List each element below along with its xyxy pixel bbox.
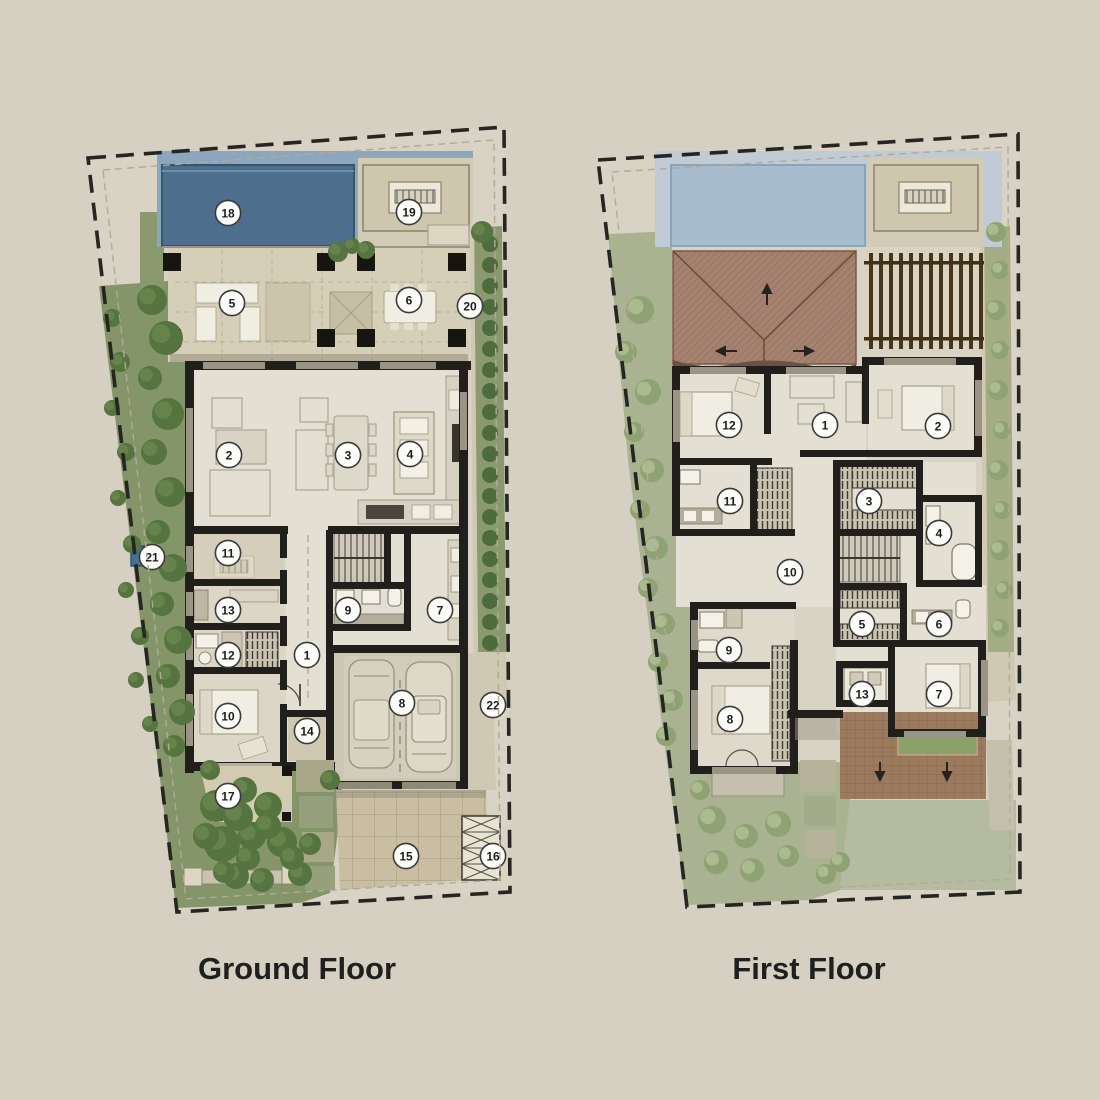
svg-text:13: 13 xyxy=(855,687,869,701)
svg-text:20: 20 xyxy=(463,299,477,313)
svg-text:4: 4 xyxy=(407,447,414,461)
svg-text:10: 10 xyxy=(783,565,797,579)
svg-text:12: 12 xyxy=(221,648,235,662)
svg-text:5: 5 xyxy=(859,617,866,631)
svg-text:2: 2 xyxy=(935,419,942,433)
svg-text:14: 14 xyxy=(300,724,314,738)
svg-text:8: 8 xyxy=(727,712,734,726)
svg-text:4: 4 xyxy=(936,526,943,540)
svg-text:11: 11 xyxy=(724,494,737,508)
svg-text:18: 18 xyxy=(221,206,235,220)
svg-text:6: 6 xyxy=(406,293,413,307)
svg-text:19: 19 xyxy=(402,205,416,219)
svg-text:1: 1 xyxy=(822,418,829,432)
svg-text:2: 2 xyxy=(226,448,233,462)
svg-text:9: 9 xyxy=(345,603,352,617)
svg-text:11: 11 xyxy=(222,546,235,560)
svg-text:First Floor: First Floor xyxy=(732,951,885,986)
svg-text:3: 3 xyxy=(345,448,352,462)
svg-text:6: 6 xyxy=(936,617,943,631)
svg-text:Ground Floor: Ground Floor xyxy=(198,951,396,986)
svg-text:13: 13 xyxy=(221,603,235,617)
svg-text:16: 16 xyxy=(486,849,500,863)
svg-text:3: 3 xyxy=(866,494,873,508)
svg-text:1: 1 xyxy=(304,648,311,662)
svg-text:7: 7 xyxy=(936,687,943,701)
svg-text:17: 17 xyxy=(221,789,235,803)
svg-text:7: 7 xyxy=(437,603,444,617)
svg-text:5: 5 xyxy=(229,296,236,310)
svg-text:9: 9 xyxy=(726,643,733,657)
svg-text:8: 8 xyxy=(399,696,406,710)
svg-text:10: 10 xyxy=(221,709,235,723)
svg-text:12: 12 xyxy=(722,418,736,432)
svg-text:15: 15 xyxy=(399,849,413,863)
